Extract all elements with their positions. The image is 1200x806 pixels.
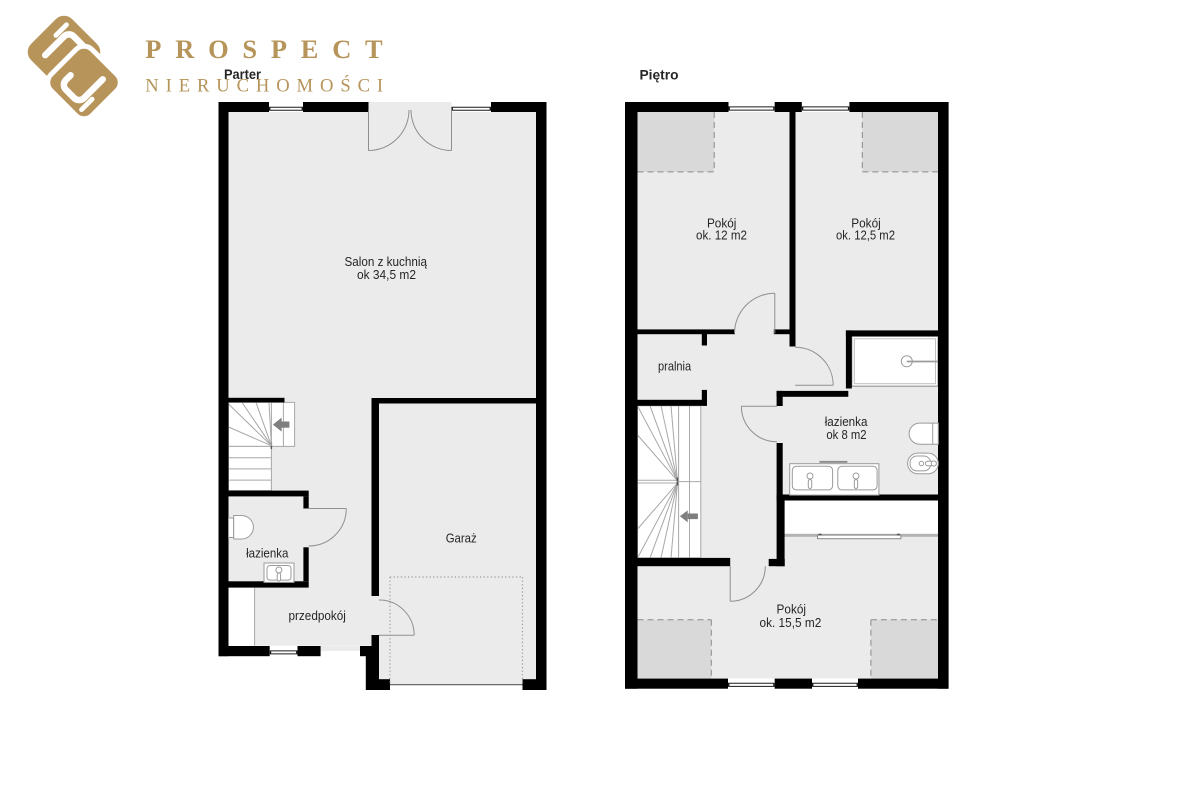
- svg-text:PROSPECT: PROSPECT: [145, 34, 396, 64]
- svg-text:Piętro: Piętro: [640, 66, 679, 82]
- svg-text:NIERUCHOMOŚCI: NIERUCHOMOŚCI: [145, 75, 390, 97]
- svg-text:Garaż: Garaż: [446, 531, 477, 546]
- svg-text:ok. 15,5 m2: ok. 15,5 m2: [760, 615, 822, 630]
- svg-text:ok 8 m2: ok 8 m2: [826, 427, 866, 442]
- svg-text:ok. 12,5 m2: ok. 12,5 m2: [836, 228, 895, 243]
- svg-text:ok. 12 m2: ok. 12 m2: [696, 228, 747, 243]
- svg-text:łazienka: łazienka: [246, 546, 289, 561]
- svg-text:ok 34,5 m2: ok 34,5 m2: [357, 267, 416, 282]
- svg-text:pralnia: pralnia: [658, 359, 692, 374]
- svg-text:przedpokój: przedpokój: [289, 608, 346, 623]
- svg-text:Parter: Parter: [224, 66, 262, 82]
